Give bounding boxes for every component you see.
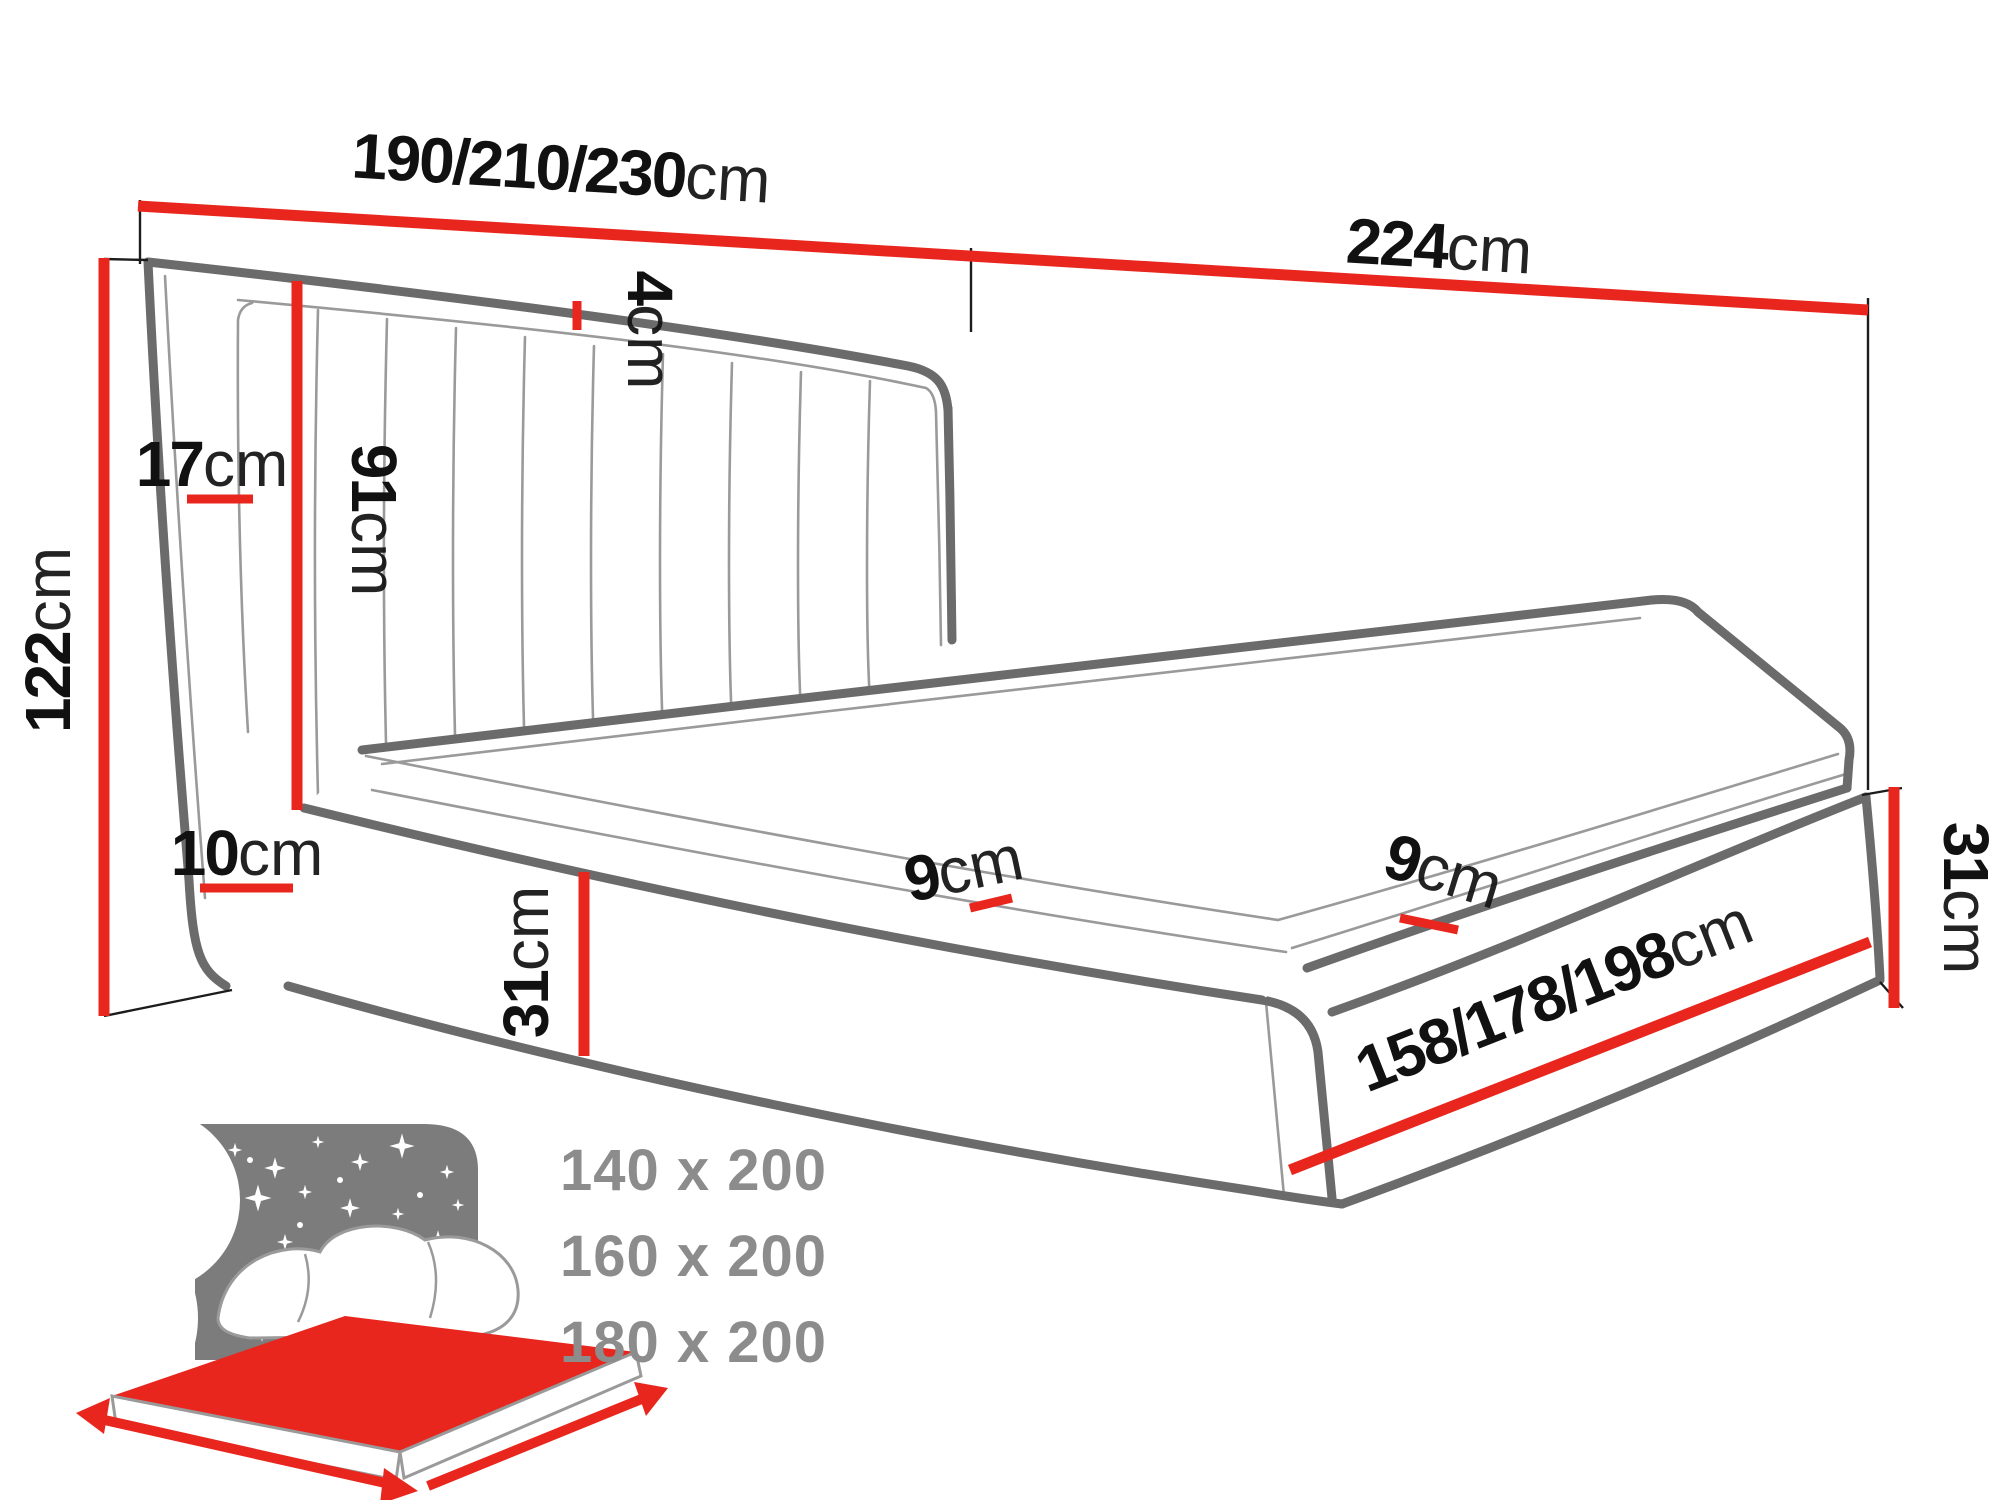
dimension-label-bed-length: 224cm <box>1344 204 1534 287</box>
dimension-label-top-edge-gap: 4cm <box>614 271 686 390</box>
extension-line-left-bottom <box>104 990 232 1016</box>
mattress-size-option-3: 180 x 200 <box>560 1310 827 1375</box>
dimension-label-base-inset: 10cm <box>171 817 324 889</box>
mattress-size-option-1: 140 x 200 <box>560 1138 827 1203</box>
dimension-label-base-height-right: 31cm <box>1930 822 2000 975</box>
bed-dimension-diagram: 190/210/230cm 224cm 122cm 17cm 91cm 4cm … <box>0 0 2000 1500</box>
dimension-label-headboard-thickness: 17cm <box>136 428 289 500</box>
dimension-label-panel-height: 91cm <box>338 444 410 597</box>
dimension-label-base-height-front: 31cm <box>490 886 562 1039</box>
dimension-label-total-height: 122cm <box>12 547 84 733</box>
headboard-right-edge <box>948 408 952 640</box>
dimension-label-headboard-width: 190/210/230cm <box>350 119 773 216</box>
mattress-size-option-2: 160 x 200 <box>560 1224 827 1289</box>
extension-line-left-top <box>104 259 148 260</box>
mattress-sizes-list: 140 x 200 160 x 200 180 x 200 <box>560 1138 827 1375</box>
